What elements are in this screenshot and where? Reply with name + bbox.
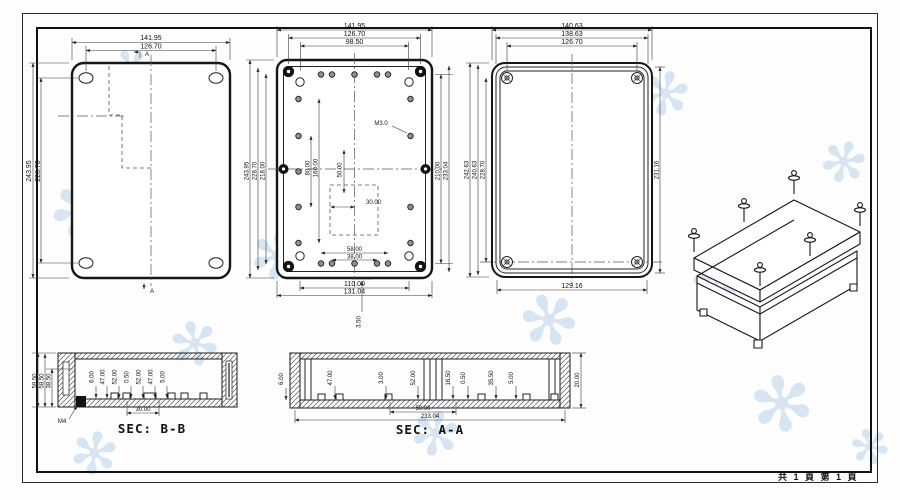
dim-front-height-outer: 243.95: [26, 160, 33, 182]
front-view: A A 141.95 126.70 243.95 228.70: [26, 35, 230, 295]
dim-bb-inner-2: 47.00: [101, 369, 107, 385]
section-bb-view: M4 59.50 58.50 38.50 6.00 47.00 52.00 0.…: [32, 353, 237, 436]
dim-front-width-holes: 126.70: [140, 44, 162, 51]
dim-bb-left-1: 59.50: [33, 373, 39, 389]
screw-icon: [739, 199, 750, 222]
dim-bb-inner-6: 47.00: [149, 369, 155, 385]
dim-base-inner-30: 30.00: [366, 200, 382, 206]
lid-corner-screw: [632, 73, 643, 84]
dim-bb-inner-4: 0.50: [125, 371, 131, 383]
dim-base-right-1: 210.00: [436, 161, 442, 180]
dim-base-top-3: 98.50: [346, 39, 364, 46]
dim-base-top-2: 126.70: [344, 31, 366, 38]
dim-front-width-outer: 141.95: [140, 35, 162, 42]
dim-aa-inner-3: 52.00: [411, 370, 417, 386]
dim-lid-left-3: 228.70: [481, 160, 487, 179]
dim-base-top-1: 141.95: [344, 23, 366, 30]
dim-bb-bottom: 30.00: [135, 407, 151, 413]
lid-corner-screw: [632, 257, 643, 268]
dim-lid-top-2: 138.63: [561, 31, 583, 38]
dim-base-inner-80: 80.00: [306, 160, 312, 176]
dim-lid-left-1: 242.63: [465, 160, 471, 179]
base-view: M3.0 141.95 126.70 98.50 243.95 228.70 2…: [245, 23, 454, 328]
thread-size-label: M3.0: [374, 121, 388, 127]
dim-base-bottom-38: 38.00: [347, 255, 363, 261]
dim-aa-inner-5: 0.50: [461, 372, 467, 384]
screw-icon: [855, 203, 866, 226]
dim-bb-left-2: 58.50: [40, 373, 46, 389]
drawing-canvas: A A 141.95 126.70 243.95 228.70: [0, 0, 900, 500]
screw-icon: [689, 229, 700, 252]
isometric-view: [689, 171, 866, 348]
dim-aa-left: 6.00: [279, 373, 285, 385]
brass-insert: [76, 396, 86, 407]
section-aa-title: SEC: A-A: [396, 422, 464, 437]
lid-corner-screw: [502, 73, 513, 84]
dim-aa-inner-7: 5.00: [509, 372, 515, 384]
dim-aa-inner-1: 47.00: [328, 370, 334, 386]
section-marker-a-top: A: [145, 52, 149, 58]
section-aa-view: 6.00 47.00 3.00 52.00 16.50 0.50 35.50 5…: [279, 353, 586, 437]
dim-aa-right: 20.00: [575, 372, 581, 388]
dim-aa-inner-6: 35.50: [489, 370, 495, 386]
lid-corner-screw: [502, 257, 513, 268]
dim-base-right-2: 233.04: [444, 161, 450, 180]
dim-aa-inner-2: 3.00: [379, 372, 385, 384]
dim-front-height-holes: 228.70: [35, 160, 42, 182]
dim-base-left-2: 228.70: [253, 161, 259, 180]
dim-lid-top-3: 126.70: [561, 39, 583, 46]
dim-aa-bottom-233: 233.04: [421, 414, 440, 420]
screw-icon: [789, 171, 800, 194]
dim-bb-inner-7: 5.00: [161, 371, 167, 383]
dim-base-left-3: 218.00: [261, 161, 267, 180]
insert-label: M4: [58, 419, 67, 425]
section-marker-a-bottom: A: [150, 289, 154, 295]
dim-lid-left-2: 240.63: [473, 160, 479, 179]
lid-view: 140.63 138.63 126.70 242.63 240.63 228.7…: [465, 23, 666, 294]
dim-aa-bottom-50: 50.00: [415, 406, 431, 412]
dim-base-inner-50: 50.00: [338, 162, 344, 178]
dim-bb-left-3: 38.50: [47, 373, 53, 389]
dim-lid-right: 231.16: [655, 160, 661, 179]
dim-aa-inner-4: 16.50: [446, 370, 452, 386]
section-bb-title: SEC: B-B: [118, 421, 186, 436]
dim-base-bottom-58: 58.00: [347, 247, 363, 253]
dim-base-lip: 3.50: [357, 316, 363, 328]
dim-base-inner-160: 160.00: [314, 158, 320, 177]
dim-lid-bottom: 129.16: [561, 283, 583, 290]
dim-bb-inner-3: 52.00: [113, 369, 119, 385]
page-footer: 共 1 頁 第 1 頁: [778, 470, 859, 483]
dim-bb-inner-5: 52.00: [137, 369, 143, 385]
dim-base-left-1: 243.95: [245, 161, 251, 180]
dim-lid-top-1: 140.63: [561, 23, 583, 30]
dim-bb-inner-1: 6.00: [90, 371, 96, 383]
